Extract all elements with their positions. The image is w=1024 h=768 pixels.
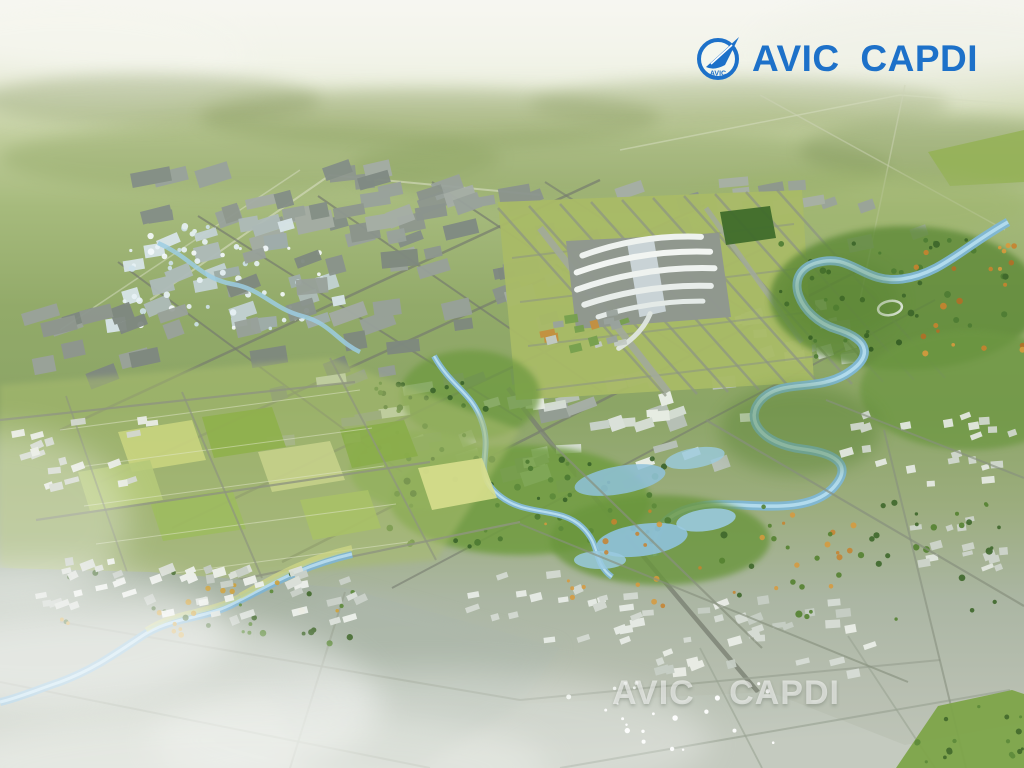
aerial-city-airport-scene bbox=[0, 0, 1024, 768]
watermark-text: AVIC CAPDI bbox=[612, 676, 840, 710]
avic-aircraft-emblem-icon: AVIC bbox=[694, 34, 742, 82]
emblem-label: AVIC bbox=[710, 71, 726, 78]
avic-capdi-logo: AVIC AVIC CAPDI bbox=[694, 34, 978, 82]
logo-wordmark: AVIC CAPDI bbox=[752, 40, 978, 77]
masterplan-aerial-rendering: AVIC AVIC CAPDI AVIC CAPDI bbox=[0, 0, 1024, 768]
